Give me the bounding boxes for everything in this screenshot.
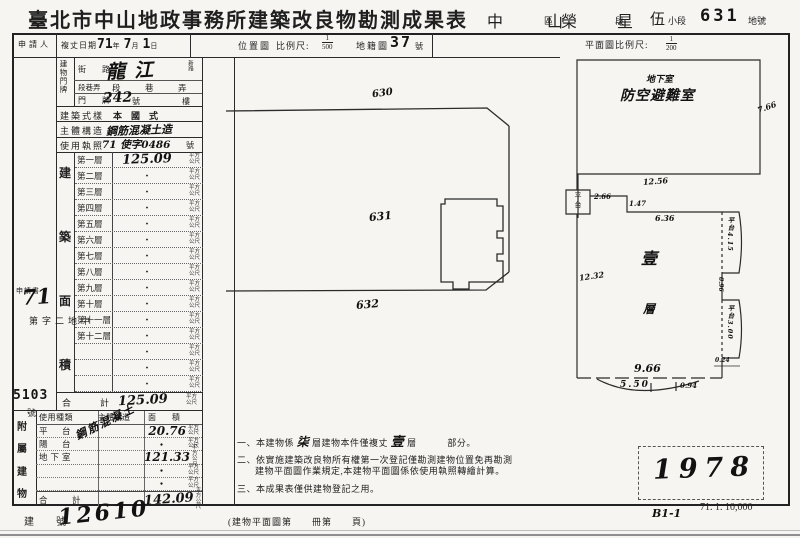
page-title: 臺北市中山地政事務所建築改良物勘測成果表 [28,4,468,33]
table-row: 第七層 ・ 平方公尺 [75,248,203,264]
basement-sublabel: 地下室 [646,72,673,85]
annex-area-cell: 20.76 平方公尺 [144,424,202,438]
table-row: 第八層 ・ 平方公尺 [75,264,203,280]
subsection-name: 伍 [650,8,665,29]
license-label: 使用執照 [60,139,104,152]
header-row-divider [12,57,560,58]
table-row: 第九層 ・ 平方公尺 [75,280,203,296]
annex-area-value: 20.76 [148,424,186,438]
floor-area-value: ・ [113,201,181,214]
area-unit: 平方公尺 [181,378,201,389]
floor-name: 第九層 [75,280,113,295]
floor-name: 第八層 [75,264,113,279]
scan-edge-line [0,530,800,531]
area-unit: 平方公尺 [196,489,202,511]
floor-label-char-2: 層 [643,300,655,317]
table-row: 第四層 ・ 平方公尺 [75,200,203,216]
note-1-text-a: 一、本建物係 [237,438,294,448]
floor-area-value: ・ [113,169,181,182]
floor-area-value: ・ [113,313,181,326]
floor-name: 第五層 [75,216,113,231]
dim-porch: 5.50 [620,380,650,390]
area-unit: 平方公尺 [181,362,201,373]
floor-area-value: ・ [113,185,181,198]
floor-area-value: ・ [113,345,181,358]
survey-year: 71 [97,37,113,52]
location-map-label: 位置圖 [238,39,271,52]
table-row: 地下室 121.33 平方公尺 [36,451,202,464]
dim-step: 1.47 [629,199,646,208]
label-char: 建 [59,164,71,181]
floor-area-value: ・ [113,297,181,310]
basement-label: 防空避難室 [620,85,695,105]
unit-line2: 公尺 [189,320,200,326]
unit-line2: 公尺 [189,272,200,278]
plan-scale-num: 1 [670,35,674,43]
platform-label: 平 台 [568,192,588,210]
area-unit: 平方公尺 [181,330,201,341]
annex-table: 使用種類 主體構造 面 積 平 台 20.76 平方公尺 陽 台 ・ 平方公尺 … [36,410,202,506]
note-1: 一、本建物係 柒 層建物本件僅複丈 壹 層 部分。 [237,437,567,449]
admin-location: 中 山 區 榮 星 段 伍 小段 631 地號 [487,6,797,30]
area-unit: 平方公尺 [181,218,201,229]
cadastre-suffix: 號 [415,41,423,52]
plan-scale-label: 平面圖比例尺: [585,38,649,51]
area-unit: 平方公尺 [188,426,202,437]
label-char: 面 [59,292,71,309]
application-stamp-prefix: 中地二字第 [27,316,92,328]
location-scale-den: 500 [322,42,333,51]
annex-rows: 平 台 20.76 平方公尺 陽 台 ・ 平方公尺 地下室 121.33 平方公… [36,425,202,491]
table-row: 平 台 20.76 平方公尺 [36,425,202,438]
unit-line2: 公尺 [196,500,202,511]
note-1-surveyed-floor-handwritten: 壹 [391,435,405,450]
application-stamp-no: 5103 [13,388,48,403]
floor-area-value: ・ [113,329,181,342]
unit-line2: 公尺 [189,208,200,214]
floor-name [75,344,113,359]
floor-area-table: 第一層 125.09 平方公尺 第二層 ・ 平方公尺 第三層 ・ 平方公尺 第四… [74,152,203,392]
year-unit: 年 [113,42,120,50]
label-char: 建 [17,463,27,478]
label-char: 屬 [17,440,27,455]
notes-block: 一、本建物係 柒 層建物本件僅複丈 壹 層 部分。 二、依實施建築改良物所有權第… [237,437,567,495]
application-stamp-number: 71 [21,283,52,310]
floor-area-value: 125.09 [113,151,181,168]
plan-scale-den: 200 [666,43,677,52]
floor-area-value: ・ [113,377,181,390]
unit-line2: 公尺 [189,160,200,166]
floor-label-char-1: 壹 [641,245,657,269]
note-1-text-b: 層建物本件僅複丈 [312,438,388,448]
table-row: 第一層 125.09 平方公尺 [75,152,203,168]
note-2-line2: 建物平面圖作業規定,本建物平面圖係依使用執照轉繪計算。 [237,466,567,477]
area-unit: 平方公尺 [181,202,201,213]
floor-name: 第十二層 [75,328,113,343]
area-unit: 平方公尺 [181,186,201,197]
unit-line2: 公尺 [188,471,202,477]
cadastre-label: 地籍圖 [356,39,389,52]
dim-bottom: 9.66 [634,362,661,375]
survey-date-label: 複丈日期 [61,40,97,51]
unit-line2: 公尺 [189,224,200,230]
unit-line2: 公尺 [189,368,200,374]
table-row: 第三層 ・ 平方公尺 [75,184,203,200]
unit-line2: 公尺 [189,288,200,294]
applicant-label: 申請人 [18,39,51,50]
scanned-survey-form: 臺北市中山地政事務所建築改良物勘測成果表 中 山 區 榮 星 段 伍 小段 63… [0,0,800,538]
application-stamp-suffix: 號 [27,406,36,419]
license-value: 71 使字0486 [102,137,171,152]
door-suffix: 號 [132,96,140,107]
area-unit: 平方公尺 [181,314,201,325]
table-row: ・ 平方公尺 [75,344,203,360]
table-row: ・ 平方公尺 [75,376,203,392]
annex-area-value: 121.33 [144,450,190,464]
floor-name: 第十層 [75,296,113,311]
license-suffix: 號 [186,140,194,151]
table-row: 第十二層 ・ 平方公尺 [75,328,203,344]
unit-line2: 公尺 [189,240,200,246]
unit-line2: 公尺 [189,256,200,262]
door-number-value: 242 [103,89,133,106]
dim-top-inner: 6.36 [655,213,674,223]
style-label: 建築式樣 [60,109,104,122]
cadastre-number: 37 [390,33,412,51]
area-unit: 平方公尺 [188,465,202,476]
address-block-label: 建物門牌 [59,60,68,94]
table-row: 第六層 ・ 平方公尺 [75,232,203,248]
location-scale-label: 比例尺: [276,39,310,52]
note-1-text-c: 層 [407,438,417,448]
plan-scale-fraction: 1 200 [666,36,677,52]
note-2-line1: 二、依實施建築改良物所有權第一次登記僅勘測建物位置免再勘測 [237,455,567,466]
floor-name [75,376,113,391]
dim-platform: 2.66 [594,192,611,201]
area-unit: 平方公尺 [181,266,201,277]
floor-area-value: ・ [113,249,181,262]
unit-line2: 公尺 [189,352,200,358]
floor-area-value: ・ [113,217,181,230]
dim-corner: 0.24 [715,357,730,364]
structure-label: 主體構造 [60,124,104,137]
receipt-stamp-box: 1978 [638,446,764,500]
month-unit: 月 [131,42,138,50]
lane-label: 段巷弄 [78,82,101,93]
floor-area-value: ・ [113,281,181,294]
row-line [56,106,202,107]
print-run-code: 71. 1. 10,000 [700,502,753,513]
survey-date-value: 71年 7月 1日 [97,35,157,53]
form-code: B1-1 [652,507,681,520]
section-name: 榮 星 [561,8,645,32]
annex-use-type: 地下室 [36,451,98,463]
subsection-label: 小段 [668,14,686,27]
map-parcel-632: 632 [355,297,379,312]
floor-name: 第六層 [75,232,113,247]
bay-gap-dim: 0.96 [717,277,724,292]
unit-line2: 公尺 [186,401,200,407]
divider-header-date [190,33,191,57]
bay1-label: 平台4.15 [725,217,735,252]
dim-basement-bottom: 12.56 [643,175,669,187]
label-char: 物 [17,485,27,500]
label-char: 平 [568,192,588,201]
area-unit: 平方公尺 [181,282,201,293]
area-unit: 平方公尺 [181,154,201,165]
floor-name: 第二層 [75,168,113,183]
table-row: ・ 平方公尺 [75,360,203,376]
label-char: 積 [59,356,71,373]
table-row: 第五層 ・ 平方公尺 [75,216,203,232]
floor-name: 第三層 [75,184,113,199]
annex-use-type: 陽 台 [36,438,98,450]
location-scale-fraction: 1 500 [322,35,333,51]
annex-area-value: ・ [157,464,166,477]
table-row: 第二層 ・ 平方公尺 [75,168,203,184]
area-unit: 平方公尺 [186,395,200,406]
floor-area-value: ・ [113,361,181,374]
table-row: 第十一層 ・ 平方公尺 [75,312,203,328]
bay2-label: 平台3.00 [725,305,735,340]
area-unit: 平方公尺 [181,298,201,309]
label-char: 築 [59,228,71,245]
street-name-value: 龍江 [105,55,162,85]
address-label-divider [74,57,75,106]
annex-area-cell: ・ 平方公尺 [144,464,202,477]
area-unit: 平方公尺 [181,170,201,181]
plan-book-reference: (建物平面圖第 冊第 頁) [228,515,366,528]
unit-line2: 公尺 [189,176,200,182]
parcel-label: 地號 [748,14,766,27]
map-parcel-631: 631 [368,209,392,224]
floor-name: 第七層 [75,248,113,263]
section-label: 段 [615,14,624,27]
parcel-number: 631 [700,6,740,26]
table-row: ・ 平方公尺 [36,465,202,478]
scan-edge-line-2 [0,534,800,536]
receipt-stamp-number: 1978 [652,451,756,486]
district-label: 區 [544,14,553,27]
area-unit: 平方公尺 [181,250,201,261]
note-1-floors-handwritten: 柒 [297,435,310,449]
street-side-label: 新路 [187,60,193,71]
style-value: 本 國 式 [113,109,158,122]
area-unit: 平方公尺 [181,346,201,357]
unit-line2: 公尺 [189,336,200,342]
dim-porch-right: 0.94 [680,381,697,390]
annex-total-value: 142.09 [144,491,195,509]
note-3: 三、本成果表僅供建物登記之用。 [237,484,567,495]
label-char: 附 [17,418,27,433]
note-1-text-d: 部分。 [447,438,476,448]
label-char: 台 [568,201,588,210]
unit-line2: 公尺 [189,304,200,310]
unit-line2: 公尺 [188,431,202,437]
day-unit: 日 [150,42,157,50]
floor-name: 第四層 [75,200,113,215]
floor-suffix: 樓 [182,96,190,107]
floor-name: 第一層 [75,152,113,167]
unit-line2: 公尺 [189,384,200,390]
floor-area-value: ・ [113,233,181,246]
floor-area-vertical-label: 建 築 面 積 [56,152,74,392]
divider-header-cadastre [432,33,433,57]
floor-area-value: ・ [113,265,181,278]
unit-line2: 公尺 [189,192,200,198]
map-section-divider [234,57,235,506]
annex-header-area: 面 積 [144,412,202,423]
floor-total-label: 合 計 [62,396,119,409]
floor-name [75,360,113,375]
area-unit: 平方公尺 [181,234,201,245]
location-scale-num: 1 [326,34,330,42]
table-row: 第十層 ・ 平方公尺 [75,296,203,312]
